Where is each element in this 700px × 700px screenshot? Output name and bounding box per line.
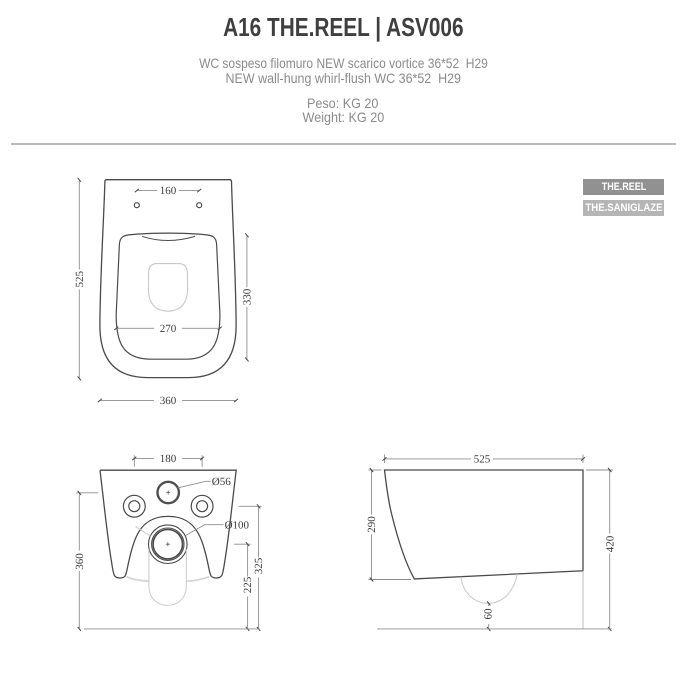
svg-text:360: 360 <box>74 553 86 570</box>
svg-text:525: 525 <box>74 271 86 288</box>
svg-text:420: 420 <box>604 535 616 552</box>
svg-text:525: 525 <box>474 454 491 466</box>
svg-text:270: 270 <box>160 323 177 335</box>
svg-text:Ø56: Ø56 <box>212 476 231 488</box>
svg-text:325: 325 <box>253 557 265 574</box>
svg-text:290: 290 <box>366 516 378 533</box>
svg-text:Ø100: Ø100 <box>225 519 250 531</box>
svg-text:225: 225 <box>242 576 254 593</box>
svg-text:180: 180 <box>160 453 177 465</box>
svg-text:360: 360 <box>160 395 177 407</box>
svg-text:60: 60 <box>482 608 494 620</box>
svg-text:160: 160 <box>160 185 177 197</box>
svg-text:330: 330 <box>242 288 254 305</box>
